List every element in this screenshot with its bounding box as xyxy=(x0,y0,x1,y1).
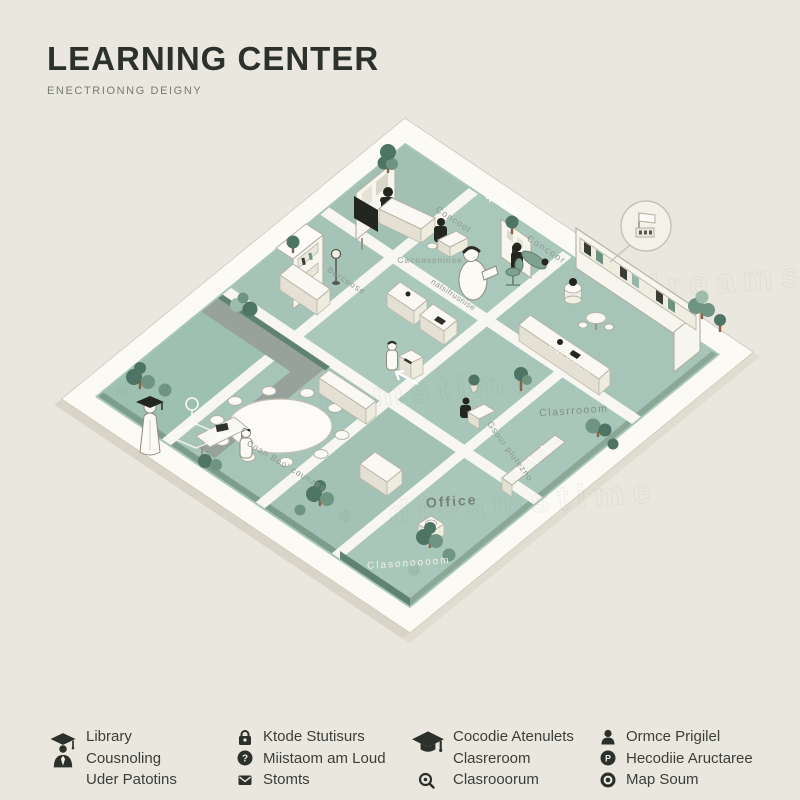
legend-label: Stomts xyxy=(263,771,310,788)
legend-label: Clasreroom xyxy=(453,750,531,767)
legend-group-library: Library Cousnoling Uder Patotins xyxy=(48,726,177,791)
legend-label: Ktode Stutisurs xyxy=(263,728,365,745)
legend-label: Library xyxy=(86,728,132,745)
map-label: Cacoassninse xyxy=(397,255,462,265)
lounger-figure xyxy=(542,259,549,266)
legend-label: Uder Patotins xyxy=(86,771,177,788)
legend-label: Miistaom am Loud xyxy=(263,750,386,767)
legend-group-services: Ktode Stutisurs ? Miistaom am Loud Stomt… xyxy=(236,726,386,791)
legend-label: Cocodie Atenulets xyxy=(453,728,574,745)
legend: Library Cousnoling Uder Patotins Ktode S… xyxy=(0,726,800,798)
mail-icon xyxy=(236,771,254,789)
target-icon xyxy=(599,771,617,789)
legend-label: Cousnoling xyxy=(86,750,161,767)
legend-label: Clasrooorum xyxy=(453,771,539,788)
legend-group-classroom: Cocodie Atenulets Clasreroom Clasrooorum xyxy=(413,726,574,791)
legend-label: Ormce Prigilel xyxy=(626,728,720,745)
legend-label: Hecodiie Aructaree xyxy=(626,750,753,767)
question-icon: ? xyxy=(236,749,254,767)
badge-icon: P xyxy=(599,749,617,767)
graduate-icon xyxy=(48,727,78,771)
svg-text:?: ? xyxy=(242,754,248,765)
mortarboard-icon xyxy=(410,729,446,757)
floorplan-illustration: dreamstime dreamstime dreamstime xyxy=(0,0,800,800)
svg-text:P: P xyxy=(605,754,611,764)
legend-label: Map Soum xyxy=(626,771,699,788)
person-icon xyxy=(599,728,617,746)
legend-group-office: Ormce Prigilel P Hecodiie Aructaree Map … xyxy=(599,726,753,791)
callout-bubble xyxy=(610,201,671,262)
copier-figure xyxy=(387,342,398,371)
lock-icon xyxy=(236,728,254,746)
